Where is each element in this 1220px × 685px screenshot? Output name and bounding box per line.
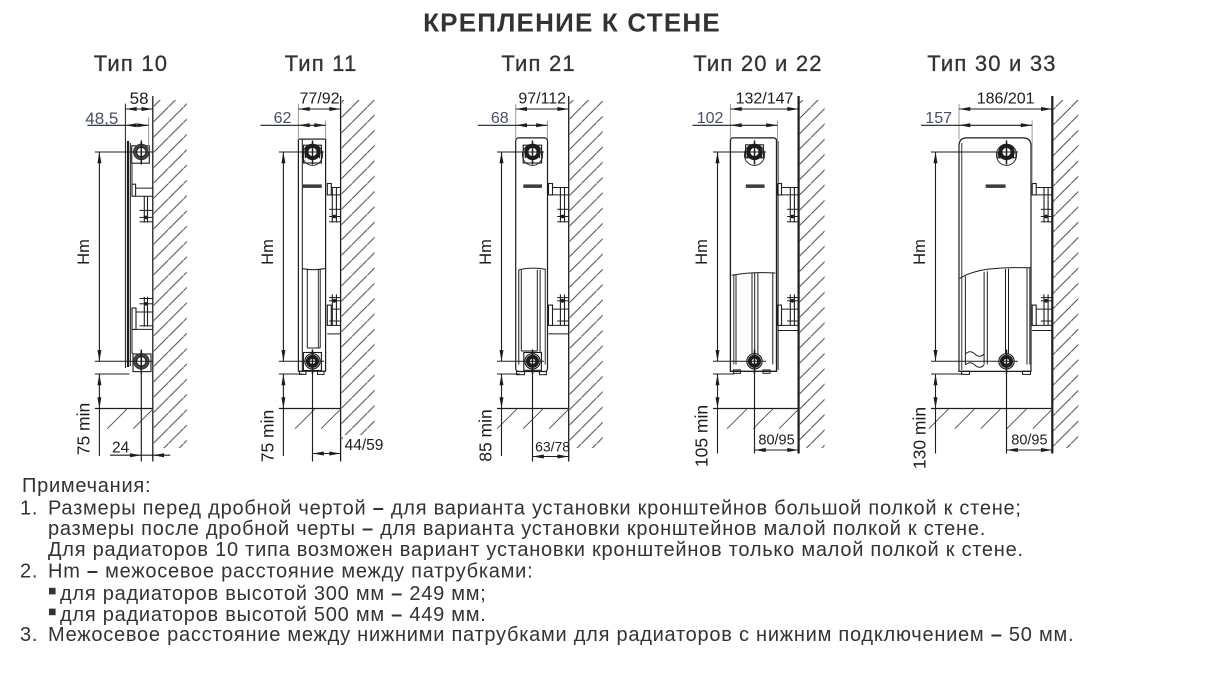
svg-text:80/95: 80/95 — [1011, 433, 1047, 449]
svg-text:Hm – межосевое расстояние межд: Hm – межосевое расстояние между патрубка… — [48, 560, 533, 582]
svg-text:Hm: Hm — [911, 239, 929, 265]
svg-text:157: 157 — [925, 110, 952, 127]
svg-text:Тип 11: Тип 11 — [285, 51, 358, 76]
svg-text:102: 102 — [697, 110, 724, 127]
svg-text:85 min: 85 min — [476, 409, 496, 462]
svg-text:для радиаторов высотой 300 мм: для радиаторов высотой 300 мм – 249 мм; — [60, 583, 487, 605]
svg-text:186/201: 186/201 — [977, 90, 1035, 107]
svg-text:105 min: 105 min — [692, 405, 712, 467]
svg-text:Примечания:: Примечания: — [22, 475, 151, 497]
svg-text:Hm: Hm — [259, 239, 277, 265]
svg-text:размеры после дробной черты –: размеры после дробной черты – для вариан… — [48, 518, 986, 540]
svg-text:Тип 10: Тип 10 — [94, 51, 168, 76]
svg-text:77/92: 77/92 — [299, 90, 339, 107]
svg-text:68: 68 — [491, 110, 509, 127]
svg-text:44/59: 44/59 — [345, 437, 384, 454]
svg-text:Hm: Hm — [75, 239, 93, 265]
svg-text:Hm: Hm — [693, 239, 711, 265]
svg-text:3.: 3. — [20, 624, 38, 646]
svg-text:63/78: 63/78 — [535, 439, 570, 455]
svg-text:Hm: Hm — [477, 239, 495, 265]
svg-text:24: 24 — [112, 440, 130, 457]
svg-text:132/147: 132/147 — [736, 90, 794, 107]
svg-text:75 min: 75 min — [73, 403, 93, 456]
svg-text:80/95: 80/95 — [758, 433, 794, 449]
svg-text:для радиаторов высотой 500 мм: для радиаторов высотой 500 мм – 449 мм. — [60, 604, 487, 626]
svg-text:130 min: 130 min — [910, 407, 930, 469]
svg-text:2.: 2. — [20, 560, 38, 582]
svg-text:62: 62 — [274, 110, 292, 127]
svg-text:КРЕПЛЕНИЕ К СТЕНЕ: КРЕПЛЕНИЕ К СТЕНЕ — [423, 8, 721, 38]
svg-text:97/112: 97/112 — [518, 90, 566, 107]
svg-text:1.: 1. — [20, 497, 38, 519]
svg-text:58: 58 — [130, 89, 149, 108]
svg-text:Для радиаторов 10 типа возможе: Для радиаторов 10 типа возможен вариант … — [48, 539, 1024, 561]
svg-text:75 min: 75 min — [257, 410, 277, 463]
svg-text:Межосевое расстояние между ниж: Межосевое расстояние между нижними патру… — [48, 624, 1074, 646]
svg-text:Тип 20 и 22: Тип 20 и 22 — [693, 51, 822, 76]
svg-text:Тип 30 и 33: Тип 30 и 33 — [927, 51, 1056, 76]
svg-text:Размеры перед дробной чертой –: Размеры перед дробной чертой – для вариа… — [48, 497, 1022, 519]
svg-text:48,5: 48,5 — [85, 109, 118, 128]
svg-text:Тип 21: Тип 21 — [501, 51, 575, 76]
